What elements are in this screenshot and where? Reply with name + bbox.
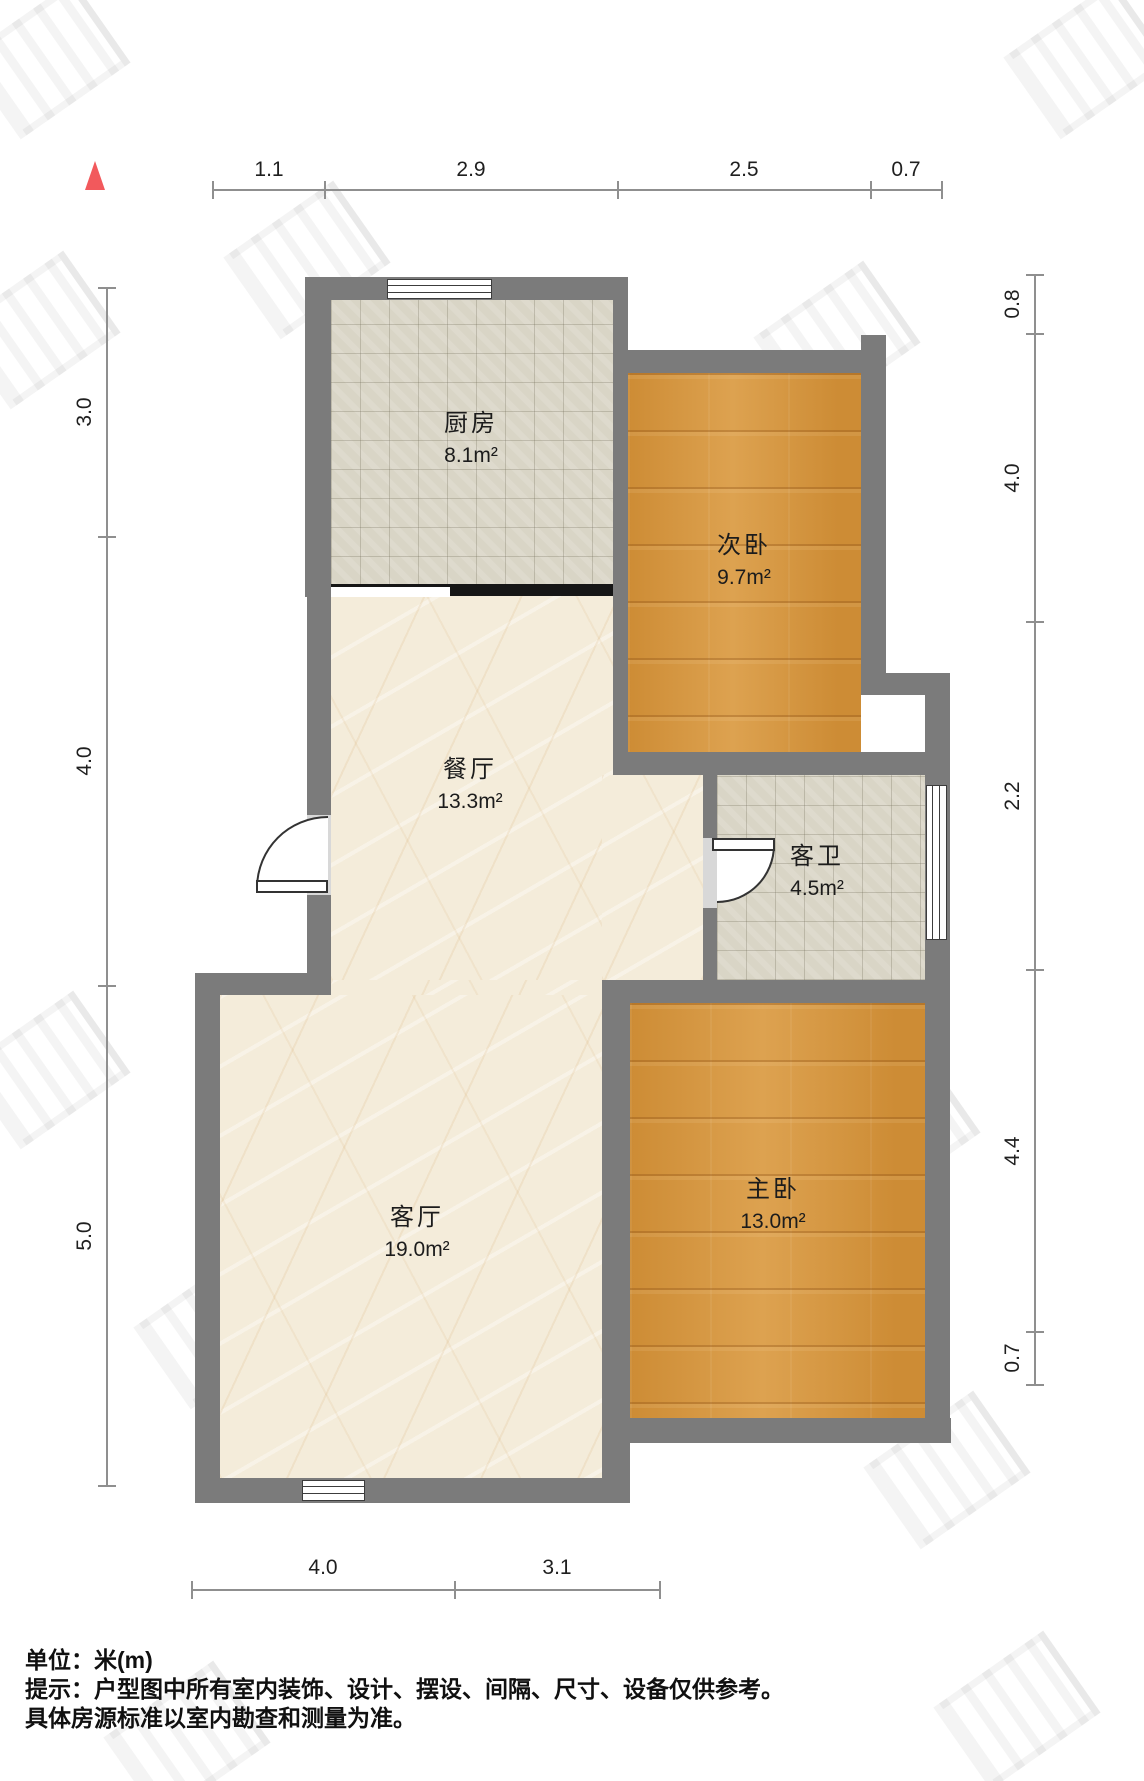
dim-tick — [659, 1581, 661, 1599]
wall-bathroom-top — [613, 752, 947, 775]
dim-label-left: 4.0 — [73, 746, 97, 775]
dim-tick — [1026, 1384, 1044, 1386]
dim-label-right: 4.4 — [1001, 1136, 1025, 1165]
dim-label-top: 1.1 — [254, 158, 283, 182]
room-area: 19.0m² — [384, 1234, 449, 1266]
dim-line-right — [1034, 275, 1036, 1385]
dim-tick — [1026, 274, 1044, 276]
dim-line-bottom — [192, 1589, 660, 1591]
room-name: 厨房 — [444, 408, 498, 440]
room-name: 餐厅 — [437, 754, 502, 786]
room-name: 客厅 — [384, 1202, 449, 1234]
dim-label-left: 3.0 — [73, 397, 97, 426]
dim-tick — [617, 181, 619, 199]
watermark — [0, 251, 121, 410]
dim-tick — [1026, 333, 1044, 335]
dim-label-bottom: 3.1 — [542, 1556, 571, 1580]
dim-label-left: 5.0 — [73, 1221, 97, 1250]
wall-outer-left — [195, 973, 220, 1503]
dim-tick — [1026, 621, 1044, 623]
dim-label-right: 0.8 — [1001, 289, 1025, 318]
entry-door-leaf — [256, 880, 328, 893]
room-area: 13.0m² — [740, 1206, 805, 1238]
bathroom-window — [926, 785, 947, 940]
room-label-dining: 餐厅 13.3m² — [437, 754, 502, 818]
room-area: 13.3m² — [437, 786, 502, 818]
room-name: 次卧 — [717, 530, 771, 562]
wall-dining-left — [307, 585, 331, 995]
dim-label-top: 2.9 — [456, 158, 485, 182]
watermark — [0, 0, 131, 139]
dim-label-top: 0.7 — [891, 158, 920, 182]
dim-tick — [1026, 969, 1044, 971]
kitchen-opening — [331, 587, 450, 597]
dim-label-top: 2.5 — [729, 158, 758, 182]
room-label-bedroom2: 次卧 9.7m² — [717, 530, 771, 594]
dim-label-right: 2.2 — [1001, 781, 1025, 810]
dining-floor-east — [602, 775, 703, 980]
wall-master-top — [602, 980, 950, 1003]
dim-label-bottom: 4.0 — [308, 1556, 337, 1580]
dim-line-left — [106, 288, 108, 1486]
room-area: 4.5m² — [790, 873, 844, 905]
dim-tick — [454, 1581, 456, 1599]
wall-living-bottom — [195, 1478, 630, 1503]
room-name: 主卧 — [740, 1174, 805, 1206]
dim-label-right: 4.0 — [1001, 463, 1025, 492]
north-arrow-icon — [85, 161, 105, 190]
wall-bedroom2-right — [861, 335, 886, 695]
entry-door-swing-arc — [256, 816, 328, 888]
dim-tick — [98, 287, 116, 289]
dim-tick — [98, 536, 116, 538]
bathroom-door-leaf — [712, 838, 775, 851]
floor-plan-canvas: 厨房 8.1m² 次卧 9.7m² 餐厅 13.3m² 客卫 4.5m² 客厅 … — [0, 0, 1144, 1781]
room-label-kitchen: 厨房 8.1m² — [444, 408, 498, 472]
dim-tick — [191, 1581, 193, 1599]
wall-kitchen-left — [305, 277, 331, 597]
room-area: 8.1m² — [444, 440, 498, 472]
watermark — [0, 991, 131, 1150]
dim-tick — [941, 181, 943, 199]
room-label-living: 客厅 19.0m² — [384, 1202, 449, 1266]
room-name: 客卫 — [790, 841, 844, 873]
dim-tick — [98, 985, 116, 987]
footer-disclaimer-line2: 具体房源标准以室内勘查和测量为准。 — [25, 1699, 416, 1733]
dim-tick — [98, 1485, 116, 1487]
kitchen-divider-wall — [450, 584, 613, 596]
dim-tick — [1026, 1331, 1044, 1333]
dim-label-right: 0.7 — [1001, 1343, 1025, 1372]
kitchen-window — [387, 279, 492, 299]
room-label-master: 主卧 13.0m² — [740, 1174, 805, 1238]
dim-line-top — [213, 189, 942, 191]
living-window — [302, 1480, 365, 1501]
dim-tick — [870, 181, 872, 199]
watermark — [933, 1631, 1100, 1781]
wall-bedroom2-top — [613, 350, 886, 373]
room-area: 9.7m² — [717, 562, 771, 594]
room-label-bathroom: 客卫 4.5m² — [790, 841, 844, 905]
dim-tick — [324, 181, 326, 199]
watermark — [1003, 0, 1144, 139]
wall-master-bottom — [602, 1418, 951, 1443]
dim-tick — [212, 181, 214, 199]
